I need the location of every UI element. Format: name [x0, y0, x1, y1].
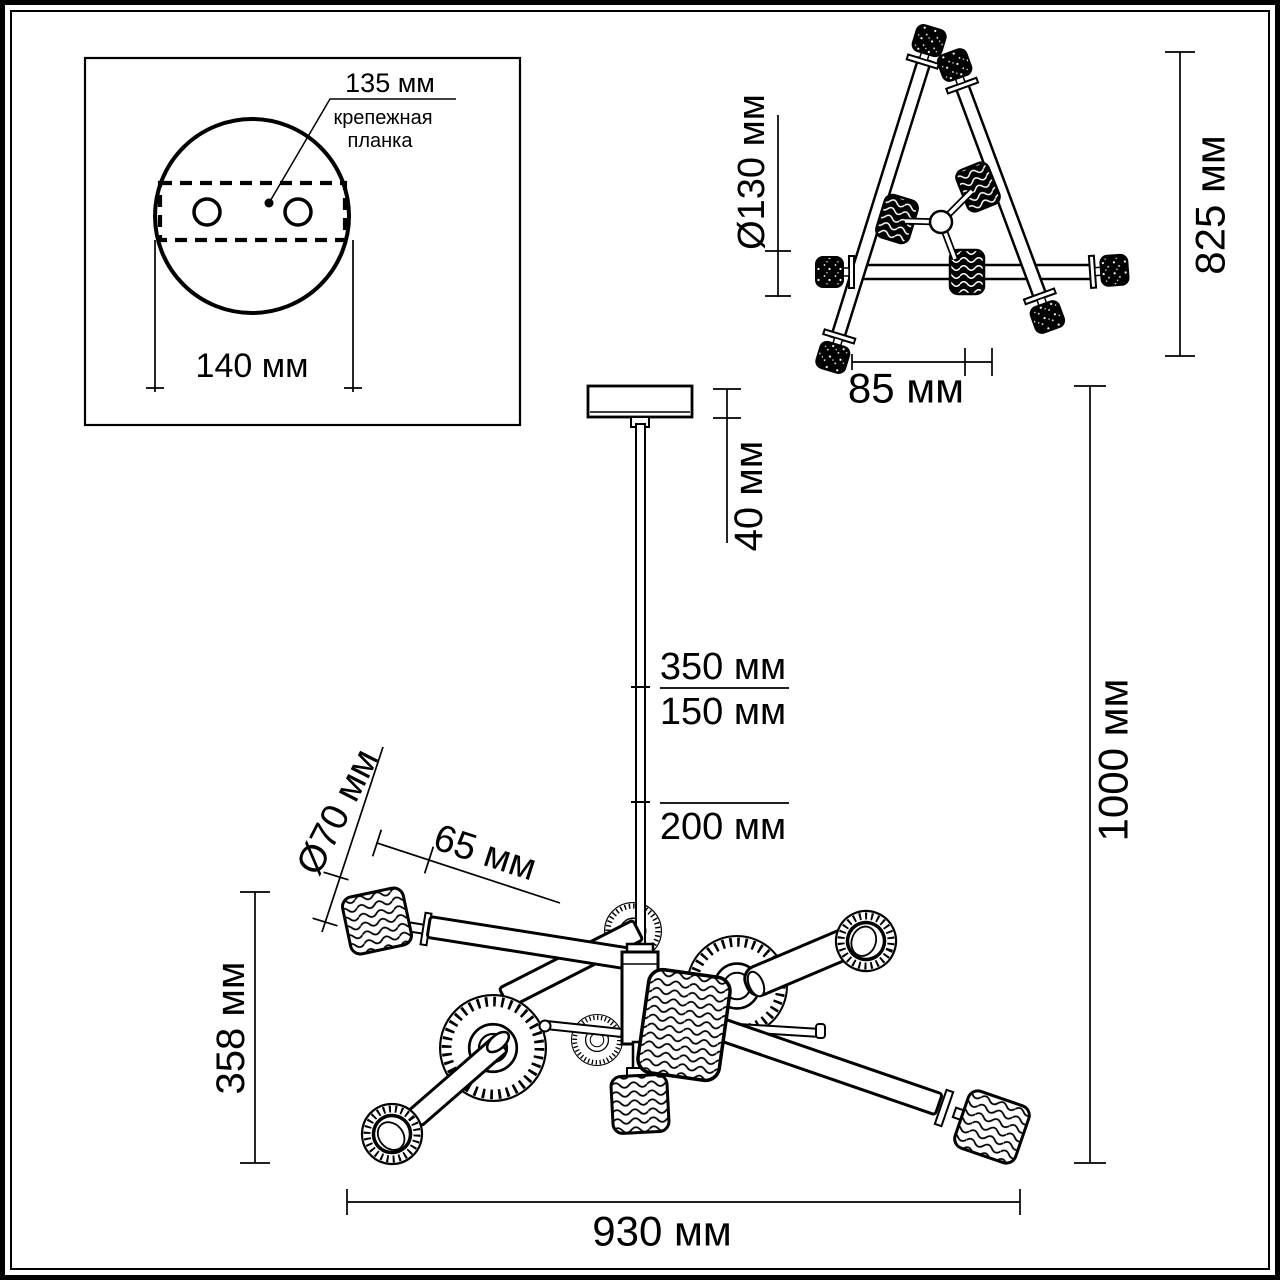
top-shade-bottom-right-icon [1024, 289, 1067, 336]
shade-center [636, 968, 732, 1082]
mount-hole-left [194, 199, 220, 225]
dim-top-diameter: Ø130 мм [731, 94, 791, 297]
dim-body-height: 358 мм [209, 892, 270, 1163]
mount-plate-view: 135 мм крепежная планка 140 мм [85, 58, 520, 425]
top-offset-label: 85 мм [848, 365, 964, 412]
plate-label-line1: крепежная [333, 107, 432, 129]
shade-bottom [611, 1074, 670, 1134]
canopy-circle [155, 119, 349, 313]
shade-ring-right [828, 903, 905, 980]
dim-top-offset: 85 мм [848, 348, 992, 412]
dim-rod-segments: 350 мм 150 мм 200 мм [660, 646, 789, 848]
dim-overall-height: 1000 мм [1074, 386, 1137, 1163]
shade-upper-left [341, 886, 414, 956]
dim-overall-width: 930 мм [347, 1189, 1020, 1255]
hanging-rod [636, 424, 645, 947]
shade-lower-right [952, 1088, 1032, 1166]
top-diameter-label: Ø130 мм [731, 94, 773, 250]
plate-label-line2: планка [348, 130, 414, 152]
top-bar-left [831, 58, 931, 341]
shade-diameter-label: Ø70 мм [289, 742, 388, 881]
canopy-diameter-label: 140 мм [196, 347, 309, 385]
decor-disc-small [572, 1015, 623, 1066]
diagram-canvas: 135 мм крепежная планка 140 мм [0, 0, 1280, 1280]
dim-canopy-height: 40 мм [713, 389, 771, 551]
overall-width-label: 930 мм [592, 1208, 732, 1255]
top-shade-top-right-icon [935, 47, 978, 94]
rod-middle-label: 150 мм [660, 691, 786, 733]
top-view: Ø130 мм 825 мм 85 мм [731, 23, 1234, 412]
fixture-body [341, 424, 1032, 1176]
arm-upper-left [427, 917, 633, 970]
rod-lower-label: 200 мм [660, 806, 786, 848]
rod-left-cap [540, 1021, 551, 1032]
top-shade-right-icon [1089, 253, 1129, 288]
canopy-height-label: 40 мм [727, 441, 771, 552]
top-shade-left-icon [816, 256, 854, 288]
rod-right-cap [816, 1024, 825, 1038]
rod-upper-label: 350 мм [660, 646, 786, 688]
dim-top-width: 825 мм [1165, 52, 1234, 356]
body-height-label: 358 мм [209, 962, 253, 1095]
diagram-page: 135 мм крепежная планка 140 мм [0, 0, 1280, 1280]
overall-height-label: 1000 мм [1090, 679, 1137, 842]
hole-spacing-label: 135 мм [345, 68, 435, 98]
side-view: 40 мм 350 мм 150 мм 200 мм Ø70 мм 65 мм [209, 386, 1137, 1255]
top-width-label: 825 мм [1187, 135, 1234, 275]
mount-hole-right [285, 199, 311, 225]
